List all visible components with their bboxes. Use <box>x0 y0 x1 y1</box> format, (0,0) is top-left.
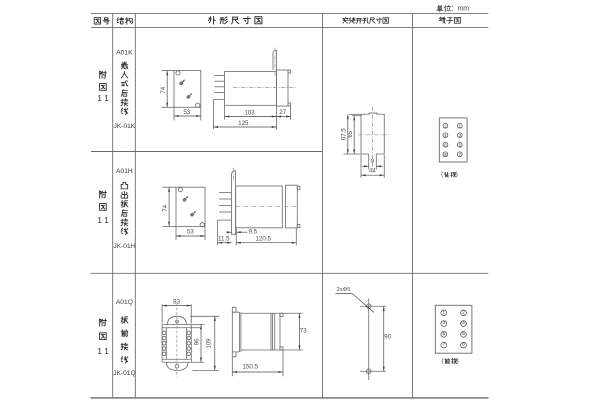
svg-text:53: 53 <box>187 229 194 236</box>
svg-text:90: 90 <box>384 334 391 340</box>
svg-text:3: 3 <box>442 320 445 326</box>
svg-text:(: ( <box>441 171 444 178</box>
svg-text:53: 53 <box>183 109 190 116</box>
svg-text:65: 65 <box>348 130 354 137</box>
svg-text:1 1: 1 1 <box>97 216 109 225</box>
svg-text:): ) <box>457 358 459 365</box>
svg-text:120.5: 120.5 <box>255 235 271 242</box>
svg-text:9: 9 <box>371 159 375 165</box>
svg-text:A01K: A01K <box>116 49 133 56</box>
svg-text:73: 73 <box>300 328 307 335</box>
svg-text:6: 6 <box>462 331 465 337</box>
svg-text:74: 74 <box>160 86 167 93</box>
svg-text:1: 1 <box>442 309 445 315</box>
svg-text:7: 7 <box>442 342 445 348</box>
svg-text:A01H: A01H <box>116 168 133 175</box>
svg-text:125: 125 <box>238 120 249 127</box>
svg-text:5: 5 <box>442 331 445 337</box>
svg-text:8: 8 <box>462 342 465 348</box>
svg-text:44: 44 <box>369 169 376 175</box>
svg-text:2xΦ5: 2xΦ5 <box>337 287 351 293</box>
svg-text:86: 86 <box>195 338 201 345</box>
svg-text:67.5: 67.5 <box>341 128 347 140</box>
svg-text:JK-01Q: JK-01Q <box>113 370 135 377</box>
svg-text:): ) <box>456 171 458 178</box>
svg-text:27: 27 <box>279 109 286 116</box>
svg-text:：mm: ：mm <box>450 5 469 12</box>
svg-text:JK-01H: JK-01H <box>113 243 135 250</box>
svg-text:11.5: 11.5 <box>218 235 230 242</box>
svg-text:83: 83 <box>173 299 180 306</box>
svg-text:103: 103 <box>244 109 255 116</box>
svg-text:A01Q: A01Q <box>116 299 133 306</box>
svg-text:74: 74 <box>162 204 169 211</box>
svg-text:4: 4 <box>462 320 465 326</box>
svg-text:150.5: 150.5 <box>242 364 258 371</box>
svg-text:2: 2 <box>462 309 465 315</box>
svg-text:1 1: 1 1 <box>97 94 109 103</box>
svg-text:JK-01K: JK-01K <box>114 123 136 130</box>
svg-text:1 1: 1 1 <box>97 347 109 356</box>
svg-text:109: 109 <box>206 338 212 349</box>
svg-text:(: ( <box>441 358 444 365</box>
